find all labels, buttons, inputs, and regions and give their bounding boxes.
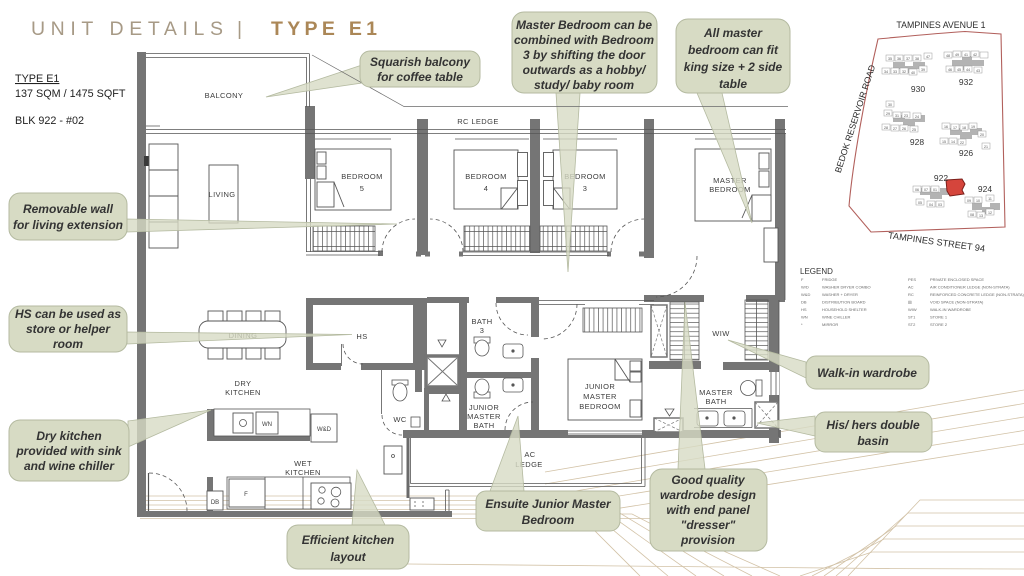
svg-text:for living extension: for living extension — [13, 218, 123, 232]
svg-text:01: 01 — [933, 188, 937, 192]
svg-text:BATH: BATH — [471, 317, 492, 326]
svg-text:WIW: WIW — [712, 329, 730, 338]
svg-text:TYPE E1: TYPE E1 — [15, 73, 59, 85]
svg-text:Dry kitchen: Dry kitchen — [36, 429, 101, 443]
svg-text:12: 12 — [988, 211, 992, 215]
svg-text:Efficient kitchen: Efficient kitchen — [302, 533, 394, 547]
svg-text:44: 44 — [966, 68, 970, 72]
svg-text:35: 35 — [888, 57, 892, 61]
svg-text:MIRROR: MIRROR — [822, 322, 838, 327]
svg-text:UNIT DETAILS: UNIT DETAILS — [31, 18, 229, 40]
svg-text:04: 04 — [929, 203, 933, 207]
svg-text:34: 34 — [884, 70, 888, 74]
svg-text:11: 11 — [988, 197, 992, 201]
svg-text:Squarish balcony: Squarish balcony — [370, 55, 471, 69]
svg-text:27: 27 — [893, 127, 897, 131]
svg-text:MASTER: MASTER — [583, 392, 617, 401]
svg-text:WET: WET — [294, 459, 312, 468]
svg-text:Master Bedroom can be: Master Bedroom can be — [516, 18, 652, 32]
svg-text:07: 07 — [924, 188, 928, 192]
svg-text:HS: HS — [356, 332, 367, 341]
svg-text:33: 33 — [893, 70, 897, 74]
svg-text:combined with Bedroom: combined with Bedroom — [514, 33, 654, 47]
svg-text:BALCONY: BALCONY — [205, 91, 244, 100]
svg-text:40: 40 — [911, 71, 915, 75]
svg-text:BEDROOM: BEDROOM — [465, 172, 507, 181]
svg-text:922: 922 — [934, 173, 948, 183]
svg-text:basin: basin — [857, 434, 888, 448]
svg-text:26: 26 — [902, 127, 906, 131]
svg-text:and wine chiller: and wine chiller — [24, 459, 115, 473]
svg-text:TAMPINES AVENUE 1: TAMPINES AVENUE 1 — [896, 20, 985, 30]
svg-text:BATH: BATH — [705, 397, 726, 406]
svg-text:Walk-in wardrobe: Walk-in wardrobe — [817, 366, 917, 380]
svg-text:DB: DB — [801, 300, 807, 305]
svg-text:AC: AC — [908, 285, 914, 290]
svg-text:table: table — [719, 77, 747, 91]
svg-text:37: 37 — [906, 57, 910, 61]
svg-text:21: 21 — [984, 145, 988, 149]
svg-text:14: 14 — [951, 140, 955, 144]
svg-text:HOUSEHOLD SHELTER: HOUSEHOLD SHELTER — [822, 307, 867, 312]
svg-text:WN: WN — [262, 422, 272, 428]
svg-text:bedroom can fit: bedroom can fit — [688, 43, 779, 57]
svg-text:3: 3 — [480, 326, 485, 335]
svg-text:with end panel: with end panel — [666, 503, 750, 517]
svg-text:RC: RC — [908, 292, 914, 297]
svg-text:F: F — [244, 492, 248, 498]
svg-text:41: 41 — [964, 53, 968, 57]
svg-text:provided with sink: provided with sink — [15, 444, 123, 458]
svg-text:HS can be used as: HS can be used as — [15, 307, 121, 321]
svg-text:ST2: ST2 — [908, 322, 916, 327]
svg-text:DRY: DRY — [235, 379, 252, 388]
svg-text:king size + 2 side: king size + 2 side — [684, 60, 783, 74]
svg-text:All master: All master — [703, 26, 763, 40]
svg-text:924: 924 — [978, 184, 992, 194]
svg-text:29: 29 — [886, 112, 890, 116]
svg-text:JUNIOR: JUNIOR — [585, 382, 616, 391]
svg-text:W&D: W&D — [317, 427, 332, 433]
svg-text:TYPE E1: TYPE E1 — [271, 18, 381, 40]
svg-text:MASTER: MASTER — [467, 412, 501, 421]
svg-text:WIW: WIW — [908, 307, 917, 312]
svg-text:5: 5 — [360, 184, 365, 193]
svg-text:layout: layout — [330, 550, 366, 564]
svg-text:TAMPINES STREET 94: TAMPINES STREET 94 — [887, 230, 985, 253]
svg-text:4: 4 — [484, 184, 489, 193]
svg-text:19: 19 — [971, 125, 975, 129]
svg-text:36: 36 — [897, 57, 901, 61]
svg-text:DISTRIBUTION BOARD: DISTRIBUTION BOARD — [822, 300, 866, 305]
svg-text:926: 926 — [959, 148, 973, 158]
svg-text:His/ hers double: His/ hers double — [826, 418, 920, 432]
svg-text:*: * — [801, 322, 803, 327]
svg-text:W&D: W&D — [801, 292, 810, 297]
svg-text:KITCHEN: KITCHEN — [285, 468, 321, 477]
svg-text:25: 25 — [912, 128, 916, 132]
svg-text:W/D: W/D — [801, 285, 809, 290]
svg-text:KITCHEN: KITCHEN — [225, 388, 261, 397]
svg-text:|: | — [237, 18, 242, 40]
svg-text:PES: PES — [908, 277, 916, 282]
svg-text:48: 48 — [946, 54, 950, 58]
svg-text:03: 03 — [938, 203, 942, 207]
svg-text:WC: WC — [393, 415, 406, 424]
svg-text:10: 10 — [976, 199, 980, 203]
svg-text:30: 30 — [888, 103, 892, 107]
svg-text:3: 3 — [583, 184, 588, 193]
svg-text:Bedroom: Bedroom — [522, 513, 575, 527]
svg-text:HS: HS — [801, 307, 807, 312]
svg-text:932: 932 — [959, 77, 973, 87]
svg-text:room: room — [53, 337, 83, 351]
svg-text:outwards as a hobby/: outwards as a hobby/ — [523, 63, 647, 77]
svg-text:17: 17 — [953, 126, 957, 130]
svg-text:930: 930 — [911, 84, 925, 94]
svg-text:MASTER: MASTER — [699, 388, 733, 397]
svg-text:STORE 2: STORE 2 — [930, 322, 948, 327]
svg-text:23: 23 — [904, 114, 908, 118]
svg-text:ST1: ST1 — [908, 315, 916, 320]
svg-text:BEDROOM: BEDROOM — [579, 402, 621, 411]
svg-text:▤: ▤ — [908, 300, 912, 305]
svg-text:F: F — [801, 277, 804, 282]
svg-text:28: 28 — [884, 126, 888, 130]
svg-text:06: 06 — [915, 188, 919, 192]
svg-text:REINFORCED CONCRETE LEDGE (NON: REINFORCED CONCRETE LEDGE (NON-STRATA) — [930, 292, 1024, 297]
svg-text:22: 22 — [960, 141, 964, 145]
svg-text:49: 49 — [955, 53, 959, 57]
svg-text:RC LEDGE: RC LEDGE — [457, 117, 499, 126]
svg-text:wardrobe design: wardrobe design — [660, 488, 756, 502]
svg-text:store or helper: store or helper — [26, 322, 111, 336]
svg-text:05: 05 — [918, 201, 922, 205]
svg-text:32: 32 — [902, 70, 906, 74]
svg-text:AIR CONDITIONER LEDGE (NON-STR: AIR CONDITIONER LEDGE (NON-STRATA) — [930, 285, 1010, 290]
svg-text:Ensuite Junior Master: Ensuite Junior Master — [485, 497, 612, 511]
svg-text:46: 46 — [948, 68, 952, 72]
svg-text:45: 45 — [957, 68, 961, 72]
svg-text:39: 39 — [921, 68, 925, 72]
svg-text:928: 928 — [910, 137, 924, 147]
svg-text:study/ baby room: study/ baby room — [534, 78, 634, 92]
svg-text:LEGEND: LEGEND — [800, 267, 833, 276]
svg-text:BEDROOM: BEDROOM — [341, 172, 383, 181]
svg-text:PRIVATE ENCLOSED SPACE: PRIVATE ENCLOSED SPACE — [930, 277, 984, 282]
svg-text:16: 16 — [944, 125, 948, 129]
svg-text:WASHER + DRYER: WASHER + DRYER — [822, 292, 858, 297]
svg-text:WINE CHILLER: WINE CHILLER — [822, 315, 851, 320]
svg-text:VOID SPACE (NON-STRATA): VOID SPACE (NON-STRATA) — [930, 300, 984, 305]
svg-text:42: 42 — [973, 53, 977, 57]
svg-text:WALK-IN WARDROBE: WALK-IN WARDROBE — [930, 307, 971, 312]
svg-text:AC: AC — [524, 450, 535, 459]
svg-text:JUNIOR: JUNIOR — [469, 403, 499, 412]
svg-text:WASHER DRYER COMBO: WASHER DRYER COMBO — [822, 285, 871, 290]
svg-text:LIVING: LIVING — [209, 190, 236, 199]
svg-text:15: 15 — [942, 140, 946, 144]
svg-text:20: 20 — [980, 133, 984, 137]
svg-text:08: 08 — [970, 213, 974, 217]
svg-text:BLK 922 - #02: BLK 922 - #02 — [15, 115, 84, 127]
svg-text:13: 13 — [979, 214, 983, 218]
svg-text:FRIDGE: FRIDGE — [822, 277, 837, 282]
svg-text:BATH: BATH — [473, 421, 494, 430]
svg-text:Removable wall: Removable wall — [23, 202, 114, 216]
svg-text:Good quality: Good quality — [671, 473, 746, 487]
svg-text:38: 38 — [915, 57, 919, 61]
svg-text:24: 24 — [915, 115, 919, 119]
svg-text:43: 43 — [976, 69, 980, 73]
svg-text:WN: WN — [801, 315, 808, 320]
svg-text:provision: provision — [680, 533, 735, 547]
svg-text:47: 47 — [926, 55, 930, 59]
svg-text:3 by shifting the door: 3 by shifting the door — [523, 48, 646, 62]
svg-text:18: 18 — [962, 126, 966, 130]
svg-text:STORE 1: STORE 1 — [930, 315, 948, 320]
svg-text:"dresser": "dresser" — [681, 518, 736, 532]
svg-text:31: 31 — [895, 114, 899, 118]
svg-text:09: 09 — [967, 199, 971, 203]
svg-text:for coffee table: for coffee table — [377, 70, 463, 84]
svg-text:137 SQM / 1475 SQFT: 137 SQM / 1475 SQFT — [15, 88, 126, 100]
svg-text:DB: DB — [211, 500, 219, 506]
